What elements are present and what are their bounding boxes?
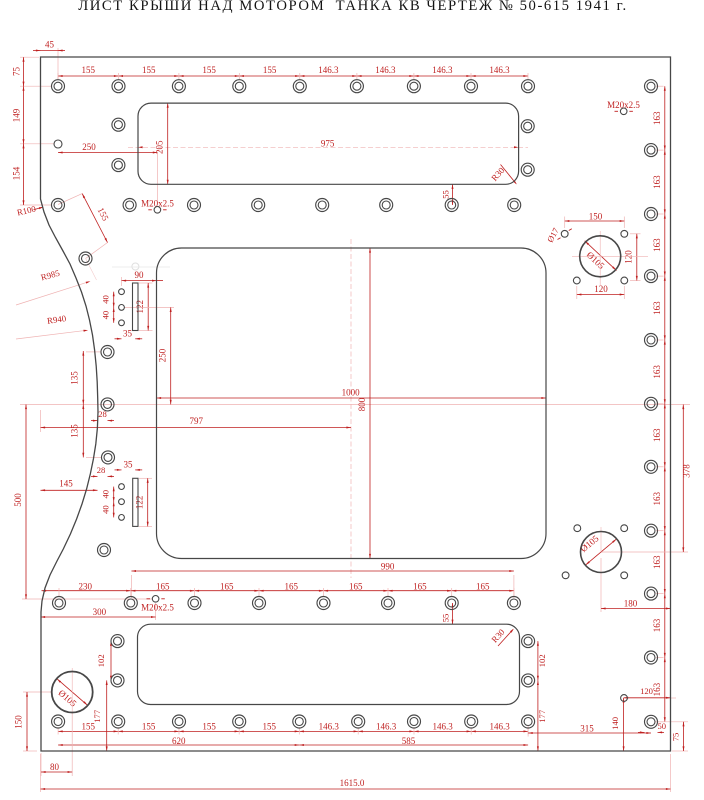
svg-text:150: 150 bbox=[14, 715, 24, 729]
svg-text:122: 122 bbox=[134, 496, 144, 510]
svg-text:90: 90 bbox=[135, 270, 145, 280]
svg-text:163: 163 bbox=[652, 555, 662, 569]
svg-text:165: 165 bbox=[220, 581, 234, 591]
svg-text:165: 165 bbox=[156, 581, 170, 591]
svg-text:55: 55 bbox=[441, 614, 451, 623]
svg-text:ЛИСТ КРЫШИ НАД МОТОРОМ ТАНКА: ЛИСТ КРЫШИ НАД МОТОРОМ ТАНКА КВ ЧЕРТЕЖ №… bbox=[78, 0, 627, 14]
svg-text:154: 154 bbox=[12, 166, 22, 180]
svg-text:155: 155 bbox=[81, 722, 95, 732]
svg-text:155: 155 bbox=[263, 65, 277, 75]
svg-text:122: 122 bbox=[135, 300, 145, 314]
svg-text:165: 165 bbox=[476, 581, 490, 591]
svg-text:102: 102 bbox=[537, 654, 547, 667]
svg-text:40: 40 bbox=[100, 490, 110, 499]
svg-text:230: 230 bbox=[79, 581, 93, 591]
svg-text:146.3: 146.3 bbox=[319, 722, 340, 732]
svg-text:40: 40 bbox=[100, 311, 110, 320]
svg-text:163: 163 bbox=[652, 238, 662, 252]
svg-text:80: 80 bbox=[50, 762, 60, 772]
svg-text:163: 163 bbox=[652, 175, 662, 189]
svg-text:75: 75 bbox=[671, 733, 681, 742]
svg-text:315: 315 bbox=[580, 723, 594, 733]
svg-text:975: 975 bbox=[321, 138, 335, 148]
svg-text:250: 250 bbox=[157, 348, 167, 362]
svg-text:155: 155 bbox=[262, 722, 276, 732]
svg-text:146.3: 146.3 bbox=[489, 722, 510, 732]
svg-text:585: 585 bbox=[402, 736, 416, 746]
svg-text:165: 165 bbox=[349, 581, 363, 591]
svg-text:163: 163 bbox=[652, 492, 662, 506]
svg-text:163: 163 bbox=[652, 618, 662, 632]
svg-text:165: 165 bbox=[413, 581, 427, 591]
svg-text:155: 155 bbox=[142, 722, 156, 732]
svg-text:120: 120 bbox=[640, 686, 653, 696]
svg-text:50: 50 bbox=[658, 721, 667, 731]
svg-text:500: 500 bbox=[13, 493, 23, 507]
svg-text:205: 205 bbox=[154, 140, 164, 154]
svg-text:40: 40 bbox=[100, 505, 110, 514]
svg-text:163: 163 bbox=[652, 301, 662, 315]
svg-text:102: 102 bbox=[96, 654, 106, 667]
svg-text:28: 28 bbox=[97, 465, 106, 475]
svg-text:135: 135 bbox=[70, 371, 80, 385]
svg-text:35: 35 bbox=[124, 459, 134, 469]
svg-text:40: 40 bbox=[100, 295, 110, 304]
svg-text:45: 45 bbox=[45, 40, 55, 50]
svg-text:120: 120 bbox=[594, 284, 608, 294]
svg-text:155: 155 bbox=[142, 65, 156, 75]
svg-text:M20x2.5: M20x2.5 bbox=[607, 100, 640, 110]
svg-text:250: 250 bbox=[82, 142, 96, 152]
svg-text:163: 163 bbox=[652, 428, 662, 442]
svg-text:146.3: 146.3 bbox=[432, 65, 453, 75]
svg-text:75: 75 bbox=[12, 67, 22, 77]
svg-text:35: 35 bbox=[123, 329, 133, 339]
svg-text:155: 155 bbox=[202, 722, 216, 732]
svg-text:1000: 1000 bbox=[342, 388, 361, 398]
svg-text:155: 155 bbox=[81, 65, 95, 75]
svg-text:163: 163 bbox=[652, 111, 662, 125]
svg-text:155: 155 bbox=[202, 65, 216, 75]
svg-text:797: 797 bbox=[189, 416, 203, 426]
svg-text:55: 55 bbox=[441, 190, 451, 199]
svg-text:140: 140 bbox=[610, 717, 620, 730]
svg-text:165: 165 bbox=[284, 581, 298, 591]
svg-text:163: 163 bbox=[652, 682, 662, 696]
svg-text:149: 149 bbox=[12, 108, 22, 122]
svg-text:378: 378 bbox=[682, 464, 692, 478]
svg-text:135: 135 bbox=[70, 424, 80, 438]
svg-text:990: 990 bbox=[381, 562, 395, 572]
svg-text:800: 800 bbox=[357, 397, 367, 411]
svg-text:146.3: 146.3 bbox=[489, 65, 510, 75]
svg-text:146.3: 146.3 bbox=[375, 65, 396, 75]
svg-text:620: 620 bbox=[172, 736, 186, 746]
svg-text:180: 180 bbox=[624, 599, 638, 609]
svg-text:M20x2.5: M20x2.5 bbox=[141, 602, 174, 612]
svg-text:177: 177 bbox=[537, 709, 547, 723]
svg-text:163: 163 bbox=[652, 365, 662, 379]
svg-text:146.3: 146.3 bbox=[318, 65, 339, 75]
svg-text:177: 177 bbox=[92, 709, 102, 723]
svg-text:120: 120 bbox=[623, 250, 633, 264]
svg-text:146.3: 146.3 bbox=[432, 722, 453, 732]
svg-text:145: 145 bbox=[59, 479, 73, 489]
svg-text:146.3: 146.3 bbox=[376, 722, 397, 732]
svg-text:150: 150 bbox=[589, 211, 603, 221]
svg-text:300: 300 bbox=[93, 607, 107, 617]
svg-text:1615.0: 1615.0 bbox=[340, 778, 365, 788]
